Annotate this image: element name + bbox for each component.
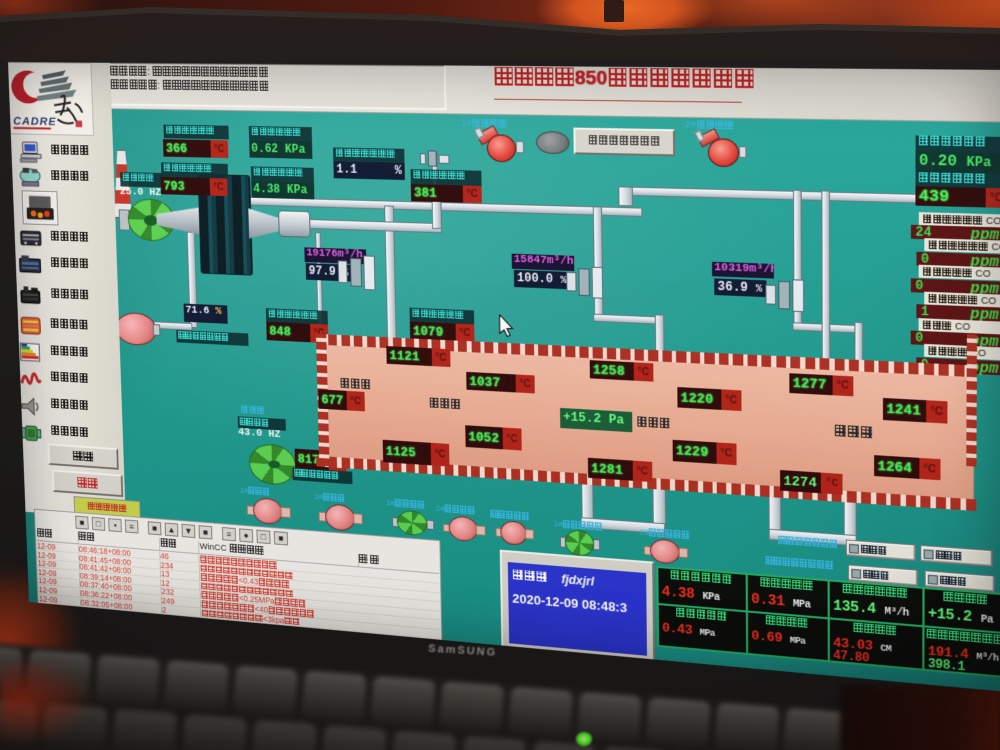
svg-text:CADRE: CADRE <box>13 115 57 128</box>
